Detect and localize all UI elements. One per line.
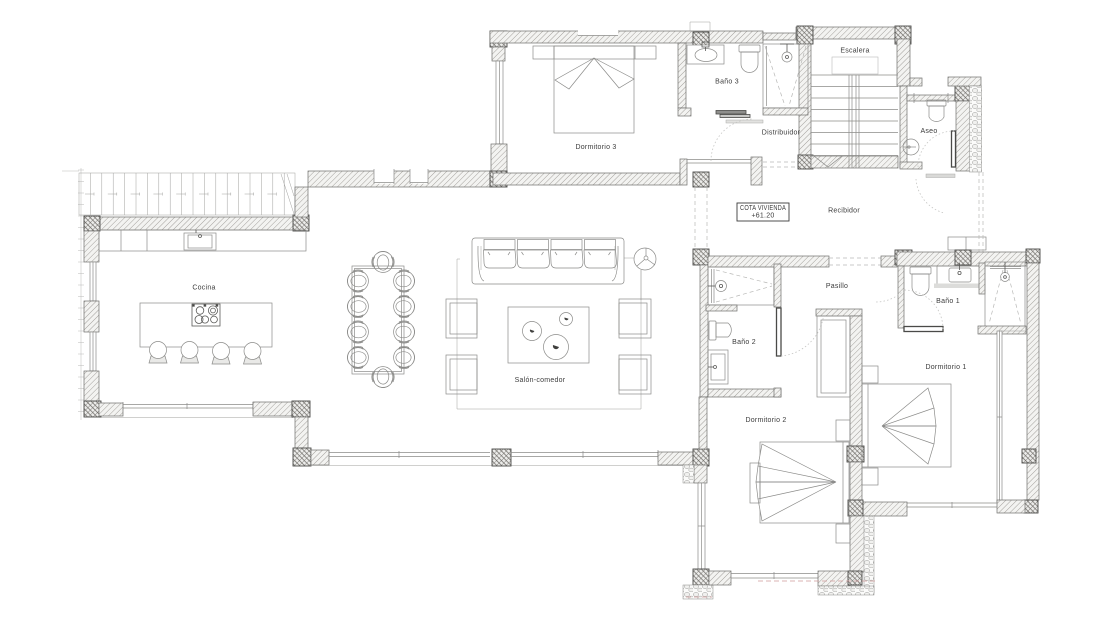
svg-text:Pasillo: Pasillo bbox=[826, 283, 848, 290]
svg-text:Baño 1: Baño 1 bbox=[936, 298, 960, 305]
svg-text:Recibidor: Recibidor bbox=[828, 208, 860, 215]
svg-text:Dormitorio 3: Dormitorio 3 bbox=[575, 144, 616, 151]
svg-text:Escalera: Escalera bbox=[840, 48, 869, 55]
svg-text:Baño 3: Baño 3 bbox=[715, 79, 739, 86]
svg-text:Cocina: Cocina bbox=[192, 285, 215, 292]
svg-text:+61.20: +61.20 bbox=[751, 213, 774, 220]
svg-text:Dormitorio 1: Dormitorio 1 bbox=[925, 364, 966, 371]
svg-text:Salón-comedor: Salón-comedor bbox=[515, 377, 566, 384]
svg-text:Baño 2: Baño 2 bbox=[732, 339, 756, 346]
svg-text:Dormitorio 2: Dormitorio 2 bbox=[745, 417, 786, 424]
svg-text:Distribuidor: Distribuidor bbox=[762, 130, 801, 137]
svg-text:COTA VIVIENDA: COTA VIVIENDA bbox=[740, 205, 786, 212]
svg-text:Aseo: Aseo bbox=[921, 128, 938, 135]
